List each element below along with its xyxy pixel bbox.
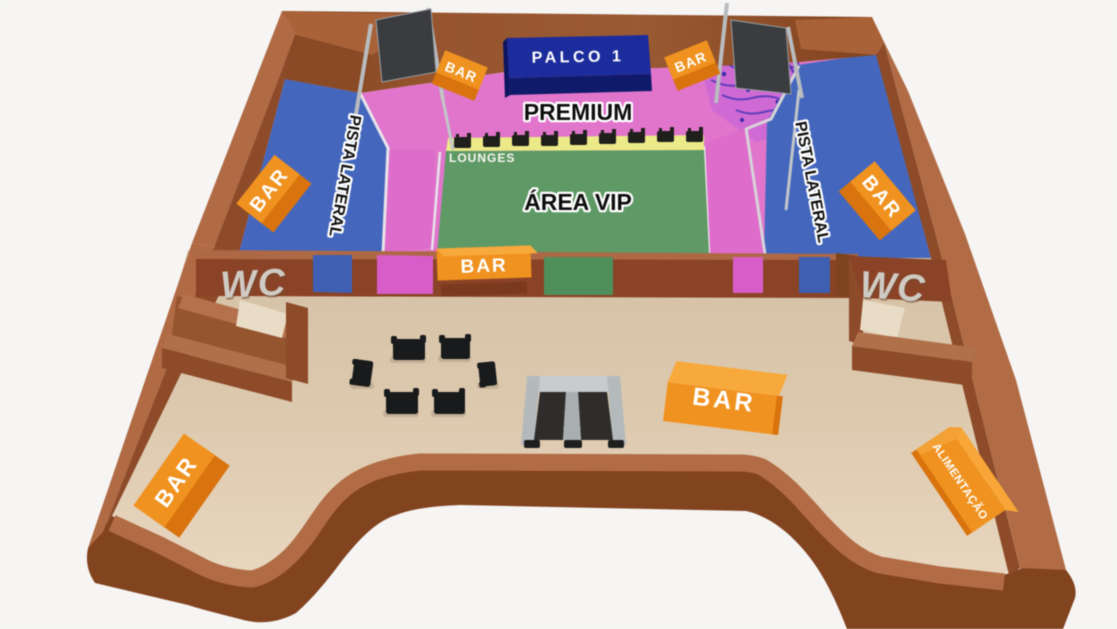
svg-text:WC: WC [858,264,927,311]
svg-text:PALCO 1: PALCO 1 [532,48,625,67]
svg-text:ÁREA VIP: ÁREA VIP [524,188,632,215]
svg-text:BAR: BAR [460,255,508,278]
svg-text:LOUNGES: LOUNGES [449,151,515,165]
svg-text:WC: WC [219,262,287,307]
svg-text:PREMIUM: PREMIUM [524,99,633,125]
